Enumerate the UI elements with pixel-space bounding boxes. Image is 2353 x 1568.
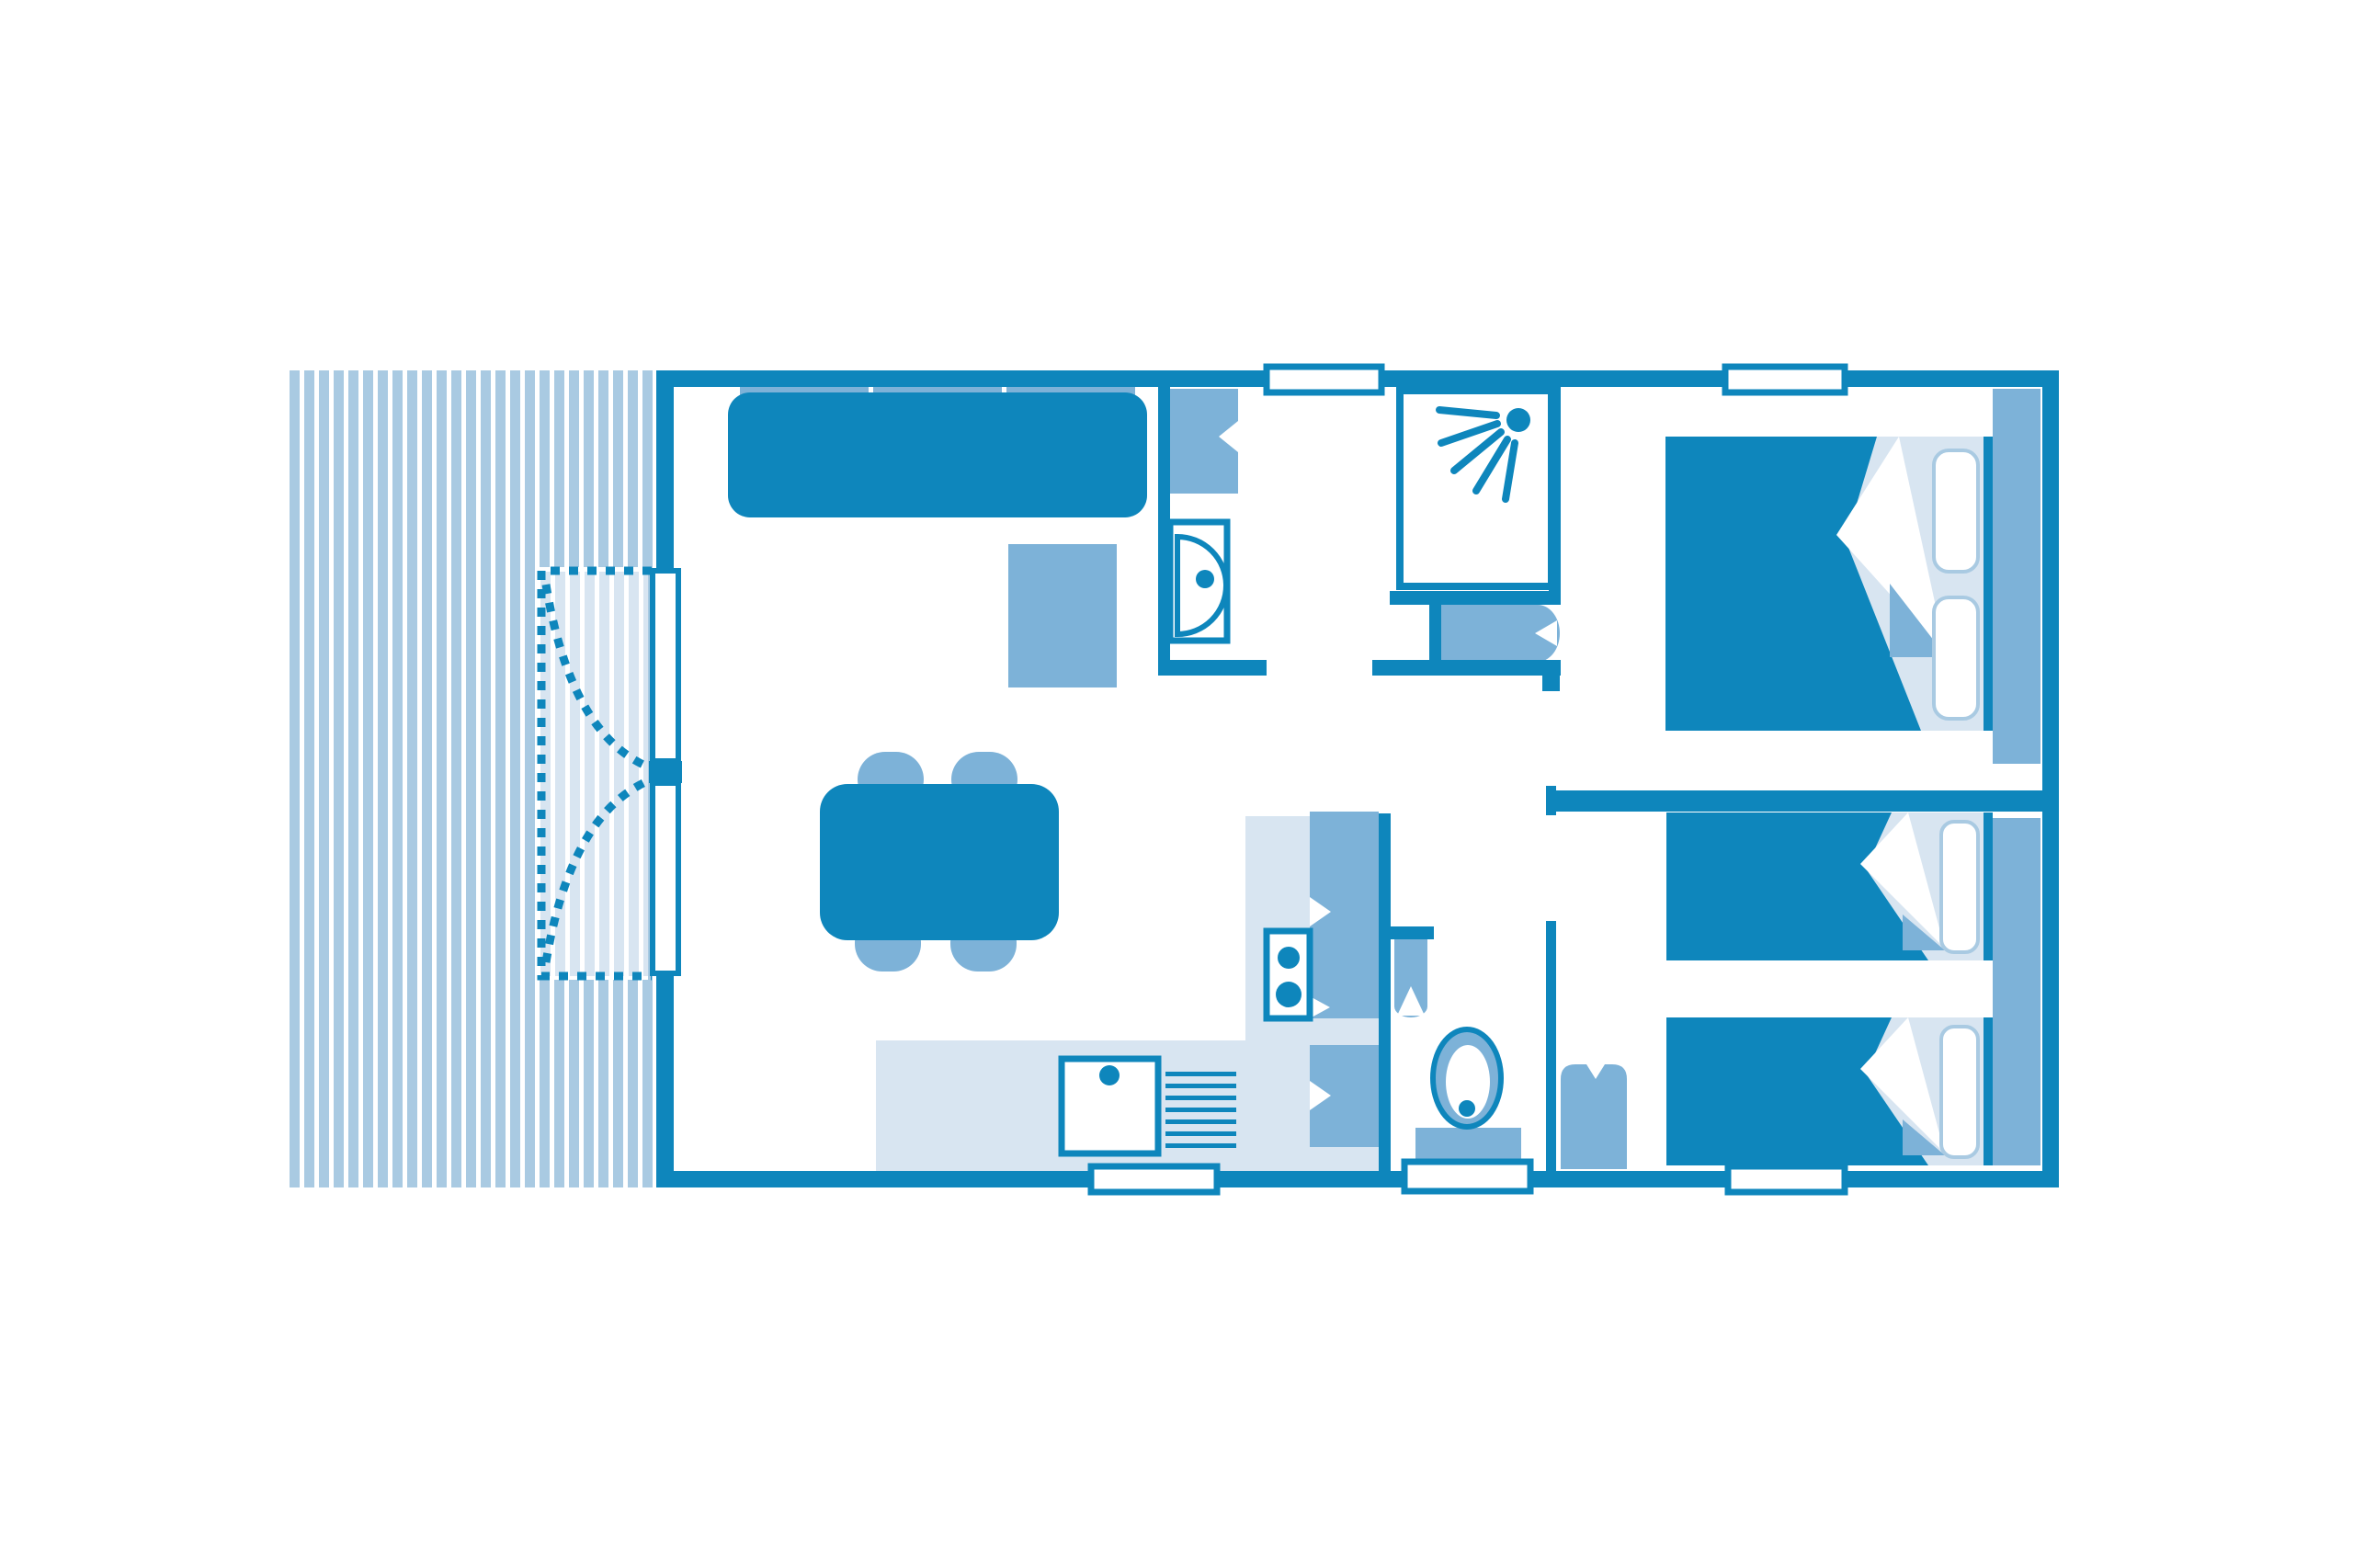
bathroom-cabinet — [1170, 389, 1238, 494]
groove-6 — [1165, 1131, 1236, 1136]
water-heater — [1561, 1064, 1627, 1169]
washbasin — [1170, 522, 1227, 641]
curtain-area-stripes — [540, 572, 648, 976]
twin-headboard — [1993, 818, 2040, 1165]
master-pillow-1 — [1934, 450, 1978, 572]
dining-set — [820, 752, 1059, 971]
wc — [1394, 937, 1521, 1165]
floor-plan-canvas — [0, 0, 2353, 1568]
window-bathroom-top — [1267, 367, 1381, 392]
hob-burner-1 — [1278, 947, 1300, 969]
groove-1 — [1165, 1072, 1236, 1076]
twin-lower-frame-line — [1984, 1017, 1993, 1165]
wall-shower-bottom — [1390, 591, 1561, 605]
living-area — [728, 387, 1147, 971]
sliding-door-joint — [649, 761, 682, 783]
terrace — [290, 370, 655, 1187]
wall-hall-stub — [1546, 786, 1556, 815]
toilet-drain — [1459, 1100, 1475, 1117]
wc-cabinet — [1394, 937, 1427, 1017]
wall-bathroom-right — [1549, 386, 1561, 605]
wall-wc-niche-stub — [1388, 926, 1434, 939]
wall-shower-cabinet-stub — [1429, 605, 1441, 662]
dining-table — [820, 784, 1059, 940]
side-table — [1008, 544, 1117, 687]
bedroom-master — [1665, 389, 2040, 764]
shower-head — [1506, 408, 1530, 432]
toilet — [1415, 1029, 1521, 1165]
under-shower-cabinet — [1441, 605, 1560, 662]
window-twin-bottom — [1728, 1166, 1845, 1192]
groove-4 — [1165, 1108, 1236, 1112]
wall-hall-bedroom2 — [1546, 921, 1556, 1174]
sofa — [728, 387, 1147, 517]
wall-bedroom-divider — [1556, 790, 2042, 812]
bathroom — [1170, 389, 1560, 662]
window-kitchen-bottom — [1091, 1166, 1217, 1192]
twin-bed-upper — [1666, 812, 1993, 960]
wall-bathroom-left — [1158, 386, 1170, 676]
groove-5 — [1165, 1119, 1236, 1124]
master-pillow-2 — [1934, 597, 1978, 719]
wall-bathroom-bottom-right — [1372, 660, 1561, 676]
under-shower-cabinet-body — [1441, 605, 1538, 662]
twin-upper-pillow — [1941, 822, 1978, 952]
wall-left-lower — [656, 974, 674, 1187]
groove-3 — [1165, 1096, 1236, 1100]
window-master-top — [1725, 367, 1845, 392]
groove-2 — [1165, 1084, 1236, 1088]
wall-left-upper — [656, 370, 674, 571]
shower — [1400, 391, 1552, 586]
sink-faucet — [1099, 1065, 1120, 1085]
entrance-door — [1404, 1162, 1530, 1191]
wall-bathroom-corner-stub — [1542, 676, 1560, 691]
wall-bathroom-bottom-left — [1158, 660, 1267, 676]
lower-cabinet — [1310, 1045, 1379, 1147]
sliding-door-panel-upper — [653, 571, 678, 761]
wall-bottom — [656, 1171, 2059, 1187]
hob — [1267, 931, 1310, 1018]
twin-upper-frame-line — [1984, 812, 1993, 960]
bedroom-twin — [1561, 812, 2040, 1169]
master-bed-frame-line — [1984, 437, 1993, 731]
hob-burner-2 — [1276, 982, 1302, 1007]
sliding-door-panel-lower — [653, 783, 678, 973]
sofa-seat — [728, 392, 1147, 517]
wall-right — [2042, 370, 2059, 1187]
twin-bed-lower — [1666, 1017, 1993, 1165]
fridge-cabinet — [1310, 812, 1379, 1018]
water-heater-body — [1561, 1064, 1627, 1169]
washbasin-faucet — [1196, 570, 1214, 588]
floor-plan — [0, 0, 2353, 1568]
master-headboard — [1993, 389, 2040, 764]
wall-kitchen-wc — [1379, 813, 1391, 1171]
groove-7 — [1165, 1143, 1236, 1148]
twin-lower-pillow — [1941, 1027, 1978, 1157]
